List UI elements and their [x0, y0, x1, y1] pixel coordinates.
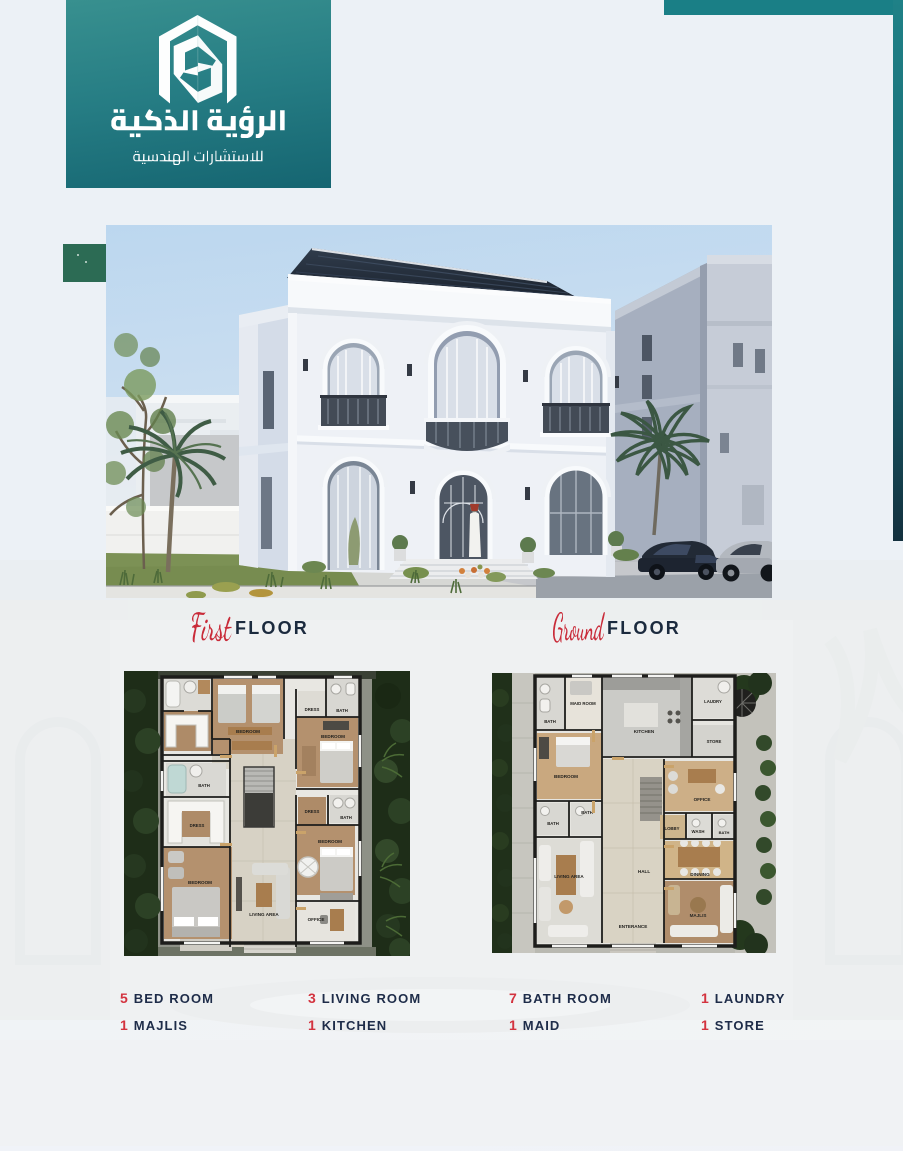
svg-text:OFFICE: OFFICE [694, 797, 711, 802]
svg-text:BEDROOM: BEDROOM [554, 774, 578, 779]
svg-text:BATH: BATH [198, 783, 210, 788]
svg-text:BATH: BATH [581, 810, 593, 815]
svg-text:DINNING: DINNING [690, 872, 710, 877]
svg-text:BEDROOM: BEDROOM [318, 839, 342, 844]
svg-text:LOBBY: LOBBY [664, 826, 679, 831]
svg-text:BATH: BATH [336, 708, 348, 713]
svg-text:BATH: BATH [544, 719, 556, 724]
svg-text:KITCHEN: KITCHEN [634, 729, 655, 734]
svg-text:BEDROOM: BEDROOM [236, 729, 260, 734]
svg-text:DRESS: DRESS [190, 823, 205, 828]
svg-text:MAID ROOM: MAID ROOM [570, 701, 596, 706]
svg-text:STORE: STORE [707, 739, 722, 744]
svg-text:LIVING AREA: LIVING AREA [249, 912, 279, 917]
svg-text:BATH: BATH [547, 821, 559, 826]
svg-text:BEDROOM: BEDROOM [321, 734, 345, 739]
svg-text:BATH: BATH [340, 815, 352, 820]
svg-text:DRESS: DRESS [305, 809, 320, 814]
svg-text:ENTERANCE: ENTERANCE [619, 924, 648, 929]
svg-text:DRESS: DRESS [305, 707, 320, 712]
svg-text:MAJLIS: MAJLIS [690, 913, 707, 918]
svg-text:BATH: BATH [719, 830, 730, 835]
svg-text:LAUDRY: LAUDRY [704, 699, 722, 704]
svg-text:LIVING AREA: LIVING AREA [554, 874, 584, 879]
svg-text:OFFICE: OFFICE [308, 917, 325, 922]
svg-text:HALL: HALL [638, 869, 650, 874]
svg-text:WASH: WASH [692, 829, 705, 834]
svg-text:BEDROOM: BEDROOM [188, 880, 212, 885]
